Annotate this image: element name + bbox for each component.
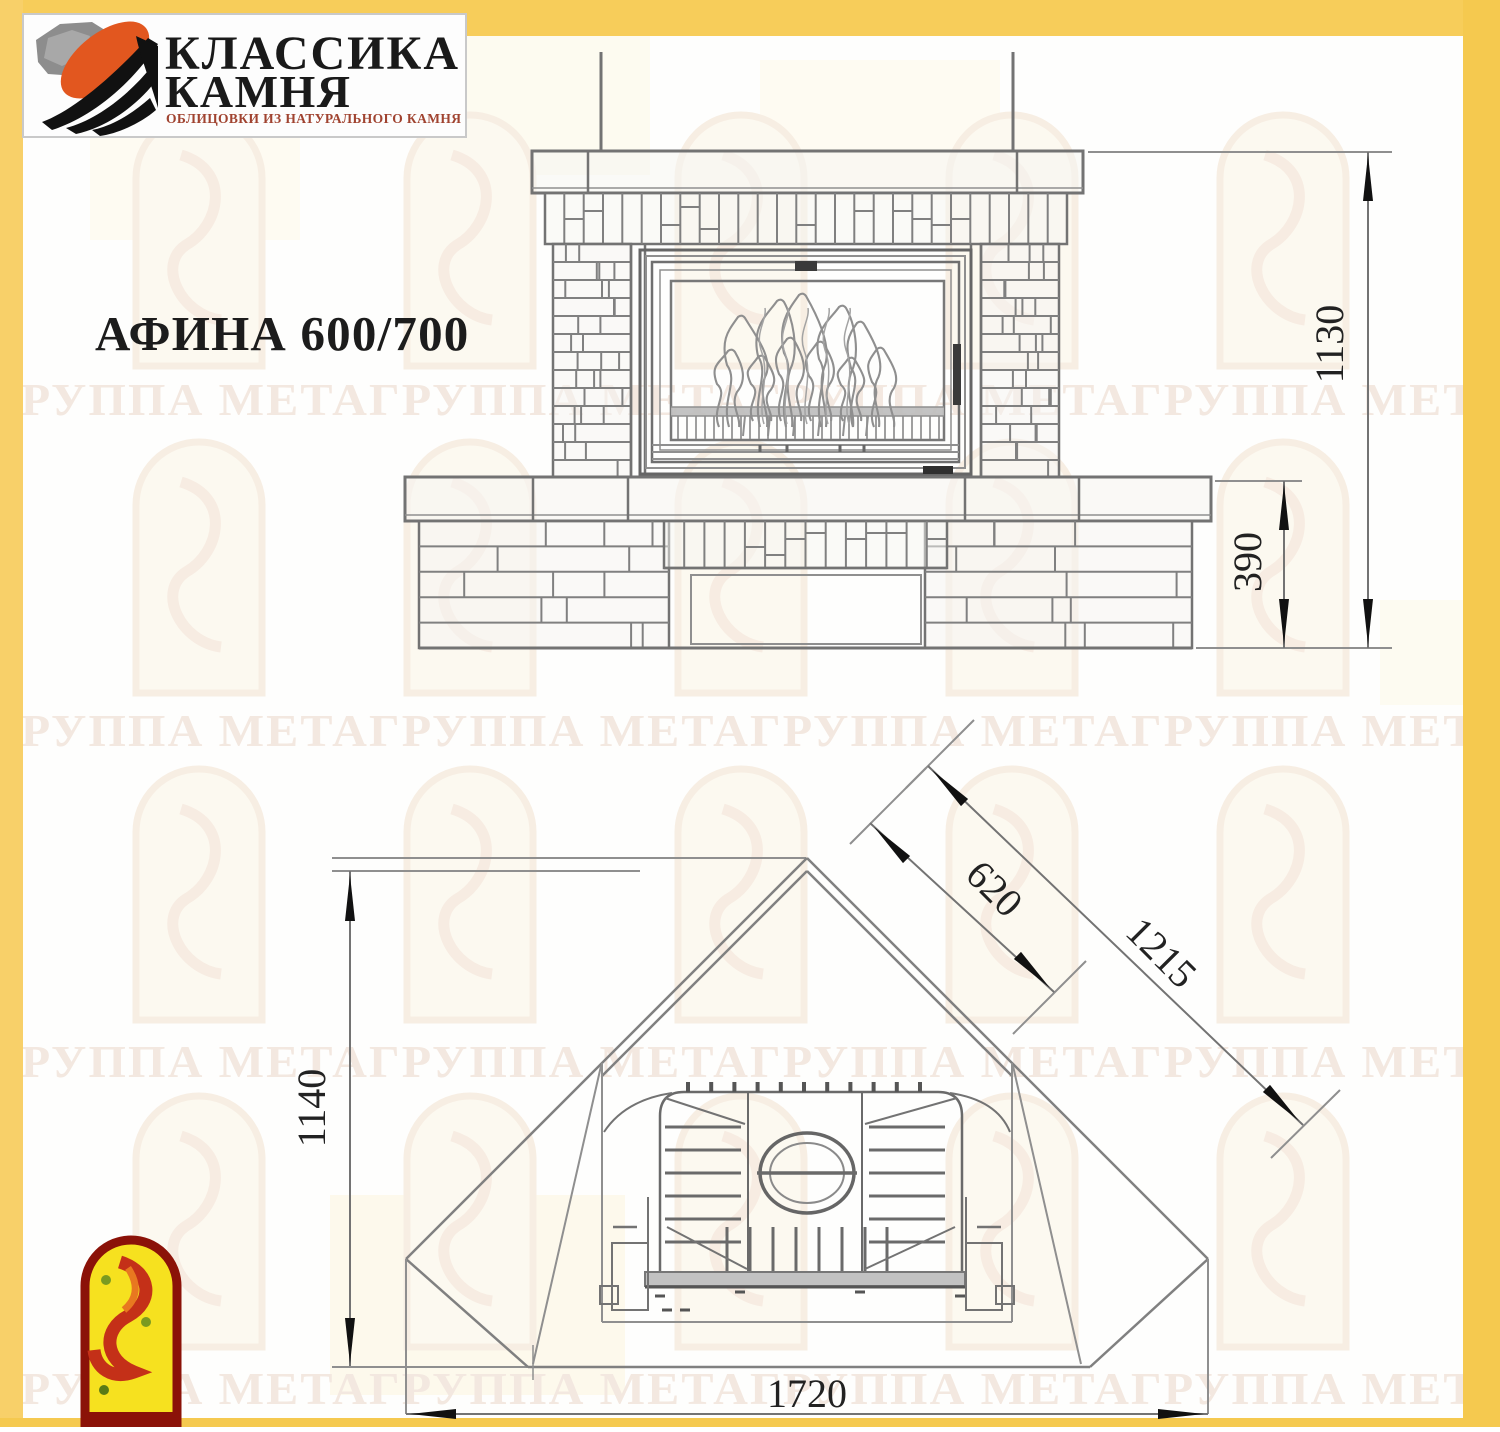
svg-text:1140: 1140 (289, 1069, 334, 1148)
svg-text:ГРУППА МЕТАГРУППА МЕТАГРУППА М: ГРУППА МЕТАГРУППА МЕТАГРУППА МЕТАГРУППА … (0, 1036, 1500, 1087)
svg-text:ОБЛИЦОВКИ ИЗ НАТУРАЛЬНОГО КАМН: ОБЛИЦОВКИ ИЗ НАТУРАЛЬНОГО КАМНЯ (166, 111, 461, 126)
svg-text:1720: 1720 (767, 1371, 847, 1416)
svg-text:390: 390 (1225, 532, 1270, 592)
svg-text:ГРУППА МЕТАГРУППА МЕТАГРУППА М: ГРУППА МЕТАГРУППА МЕТАГРУППА МЕТАГРУППА … (0, 705, 1500, 756)
svg-text:АФИНА 600/700: АФИНА 600/700 (95, 306, 469, 361)
svg-text:КАМНЯ: КАМНЯ (165, 66, 352, 117)
svg-text:1130: 1130 (1307, 305, 1352, 384)
svg-text:ГРУППА МЕТАГРУППА МЕТАГРУППА М: ГРУППА МЕТАГРУППА МЕТАГРУППА МЕТАГРУППА … (0, 1363, 1500, 1414)
